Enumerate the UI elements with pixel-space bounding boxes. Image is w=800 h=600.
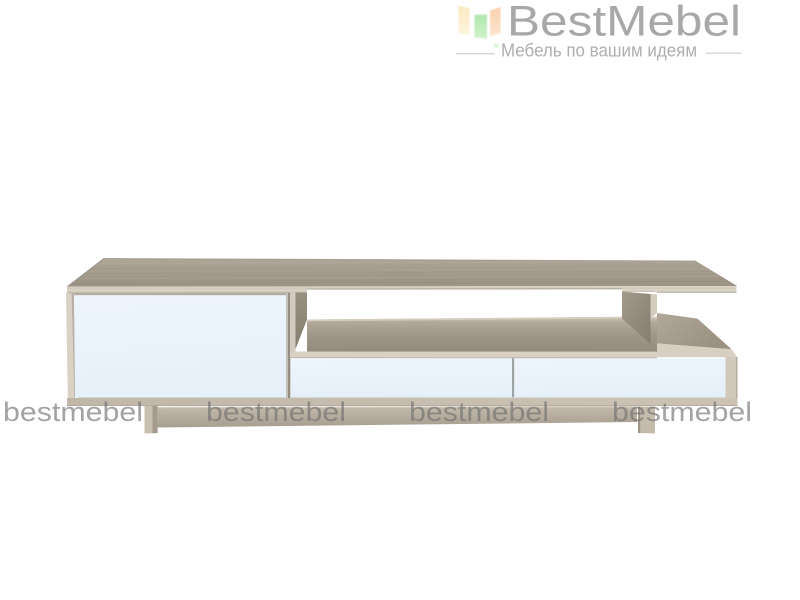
svg-text:bestmebel: bestmebel: [3, 397, 143, 427]
svg-text:Мебель по вашим идеям: Мебель по вашим идеям: [501, 40, 697, 61]
svg-text:bestmebel: bestmebel: [206, 397, 346, 427]
svg-text:bestmebel: bestmebel: [409, 397, 549, 427]
svg-text:bestmebel: bestmebel: [612, 397, 752, 427]
